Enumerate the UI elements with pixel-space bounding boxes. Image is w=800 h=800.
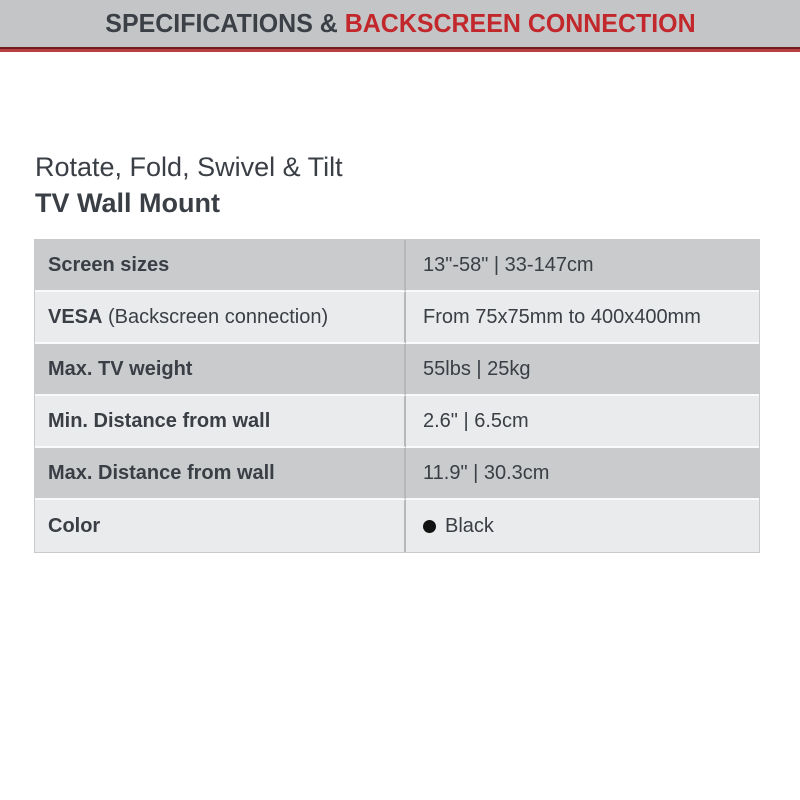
product-subtitle: Rotate, Fold, Swivel & Tilt — [35, 150, 800, 185]
spec-value: 55lbs | 25kg — [423, 358, 531, 380]
spec-label: Max. Distance from wall — [48, 462, 275, 484]
spec-label-cell: Max. Distance from wall — [35, 448, 406, 500]
spec-value-cell: Black — [406, 500, 759, 552]
section-header-bar: SPECIFICATIONS & BACKSCREEN CONNECTION — [0, 0, 800, 47]
product-title: TV Wall Mount — [35, 185, 800, 222]
spec-label-cell: Screen sizes — [35, 240, 406, 292]
spec-label-cell: VESA (Backscreen connection) — [35, 292, 406, 344]
spec-value: 2.6" | 6.5cm — [423, 410, 529, 432]
spec-value-cell: 13"-58" | 33-147cm — [406, 240, 759, 292]
spec-value-cell: 2.6" | 6.5cm — [406, 396, 759, 448]
table-row: Max. Distance from wall11.9" | 30.3cm — [35, 448, 759, 500]
spec-value-cell: 55lbs | 25kg — [406, 344, 759, 396]
spec-label: Color — [48, 515, 100, 537]
section-header-title-red: BACKSCREEN CONNECTION — [344, 8, 695, 38]
spec-value-cell: From 75x75mm to 400x400mm — [406, 292, 759, 344]
spec-label: Min. Distance from wall — [48, 410, 270, 432]
spec-label-suffix: (Backscreen connection) — [102, 306, 328, 328]
spec-value-cell: 11.9" | 30.3cm — [406, 448, 759, 500]
spec-label: Screen sizes — [48, 254, 169, 276]
header-divider-line — [0, 47, 800, 52]
spec-label-cell: Min. Distance from wall — [35, 396, 406, 448]
color-bullet-icon — [423, 520, 436, 533]
table-row: Min. Distance from wall2.6" | 6.5cm — [35, 396, 759, 448]
spec-label: VESA — [48, 306, 102, 328]
spec-label: Max. TV weight — [48, 358, 192, 380]
spec-label-cell: Color — [35, 500, 406, 552]
table-row: ColorBlack — [35, 500, 759, 552]
spec-value: 11.9" | 30.3cm — [423, 462, 549, 484]
spec-sheet-page: SPECIFICATIONS & BACKSCREEN CONNECTION R… — [0, 0, 800, 800]
spec-value: Black — [445, 515, 494, 537]
spec-value: From 75x75mm to 400x400mm — [423, 306, 701, 328]
section-header-title-dark: SPECIFICATIONS & — [105, 8, 344, 38]
spec-value: 13"-58" | 33-147cm — [423, 254, 594, 276]
table-row: Screen sizes13"-58" | 33-147cm — [35, 240, 759, 292]
product-intro: Rotate, Fold, Swivel & Tilt TV Wall Moun… — [35, 150, 800, 222]
table-row: VESA (Backscreen connection)From 75x75mm… — [35, 292, 759, 344]
spec-table-body: Screen sizes13"-58" | 33-147cmVESA (Back… — [35, 240, 759, 552]
table-row: Max. TV weight55lbs | 25kg — [35, 344, 759, 396]
section-header-title: SPECIFICATIONS & BACKSCREEN CONNECTION — [105, 8, 695, 39]
spec-label-cell: Max. TV weight — [35, 344, 406, 396]
spec-table: Screen sizes13"-58" | 33-147cmVESA (Back… — [34, 239, 760, 553]
